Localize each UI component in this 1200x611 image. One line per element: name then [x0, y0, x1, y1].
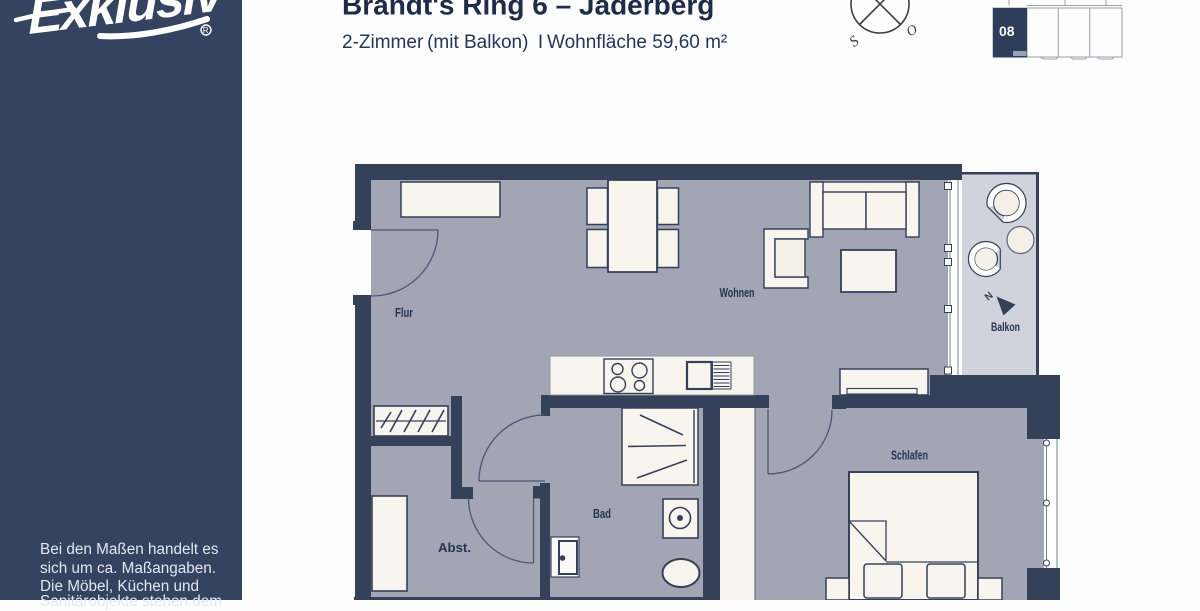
svg-text:Wohnen: Wohnen: [720, 286, 755, 300]
svg-text:Balkon: Balkon: [991, 320, 1020, 334]
svg-text:Bad: Bad: [593, 507, 611, 521]
svg-text:Flur: Flur: [395, 306, 413, 320]
svg-text:Abst.: Abst.: [438, 541, 471, 555]
svg-text:Schlafen: Schlafen: [891, 449, 928, 463]
